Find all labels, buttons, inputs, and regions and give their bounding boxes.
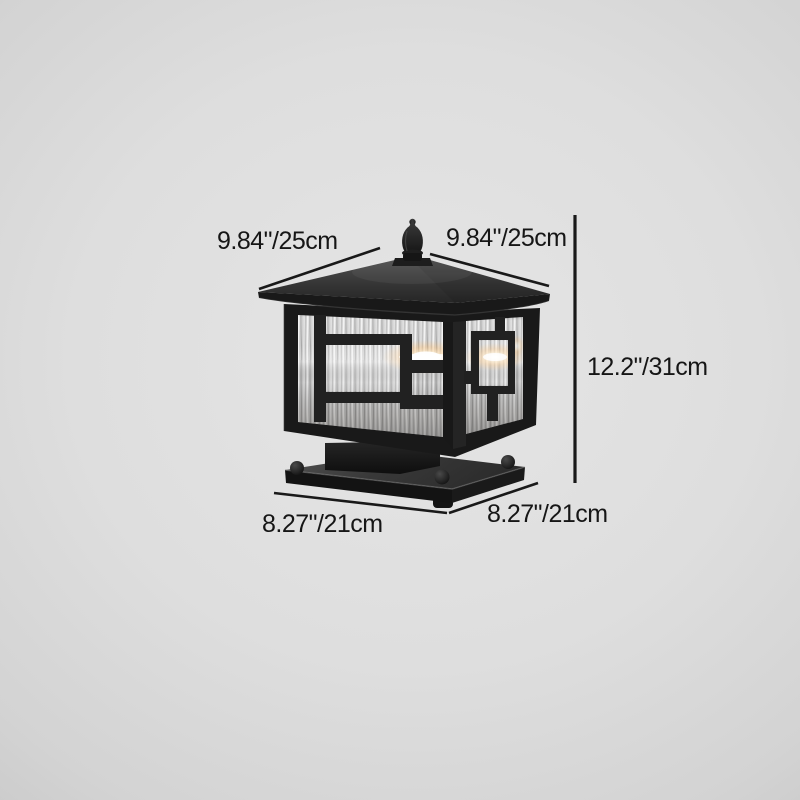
corner-post	[443, 322, 453, 449]
dimension-label-top-right: 9.84"/25cm	[446, 226, 567, 251]
ball-foot-left	[290, 461, 304, 475]
dimension-label-height: 12.2"/31cm	[587, 355, 708, 380]
ball-foot-front	[435, 470, 450, 485]
product-dimension-image: 9.84"/25cm 9.84"/25cm 12.2"/31cm 8.27"/2…	[0, 0, 800, 800]
lantern-body	[284, 304, 540, 457]
dimension-label-bottom-left: 8.27"/21cm	[262, 512, 383, 537]
dimension-label-bottom-right: 8.27"/21cm	[487, 502, 608, 527]
ball-foot-right	[501, 455, 515, 469]
finial	[402, 219, 423, 261]
pillar-lantern-illustration	[0, 0, 800, 800]
dimension-label-top-left: 9.84"/25cm	[217, 229, 338, 254]
